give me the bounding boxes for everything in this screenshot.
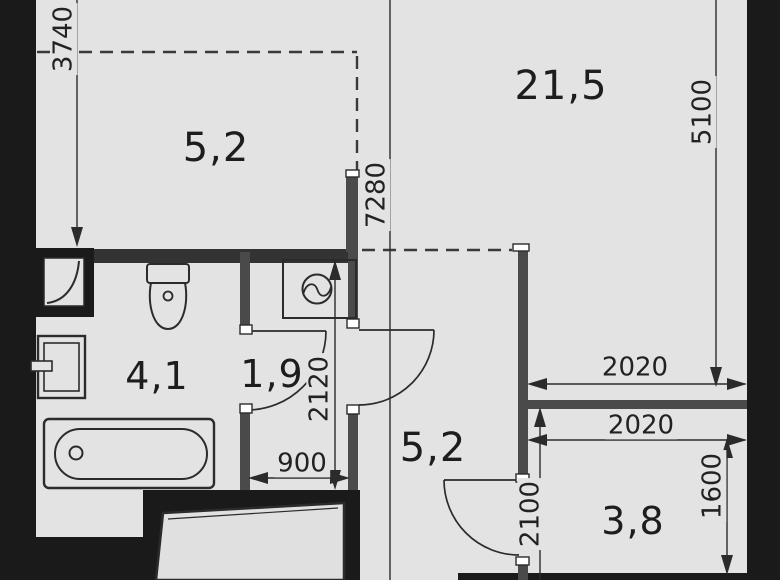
plan-drawing bbox=[0, 0, 780, 580]
dim-label-900: 900 bbox=[274, 450, 330, 477]
toilet-icon bbox=[147, 264, 189, 329]
dim-label-2100: 2100 bbox=[517, 478, 544, 550]
bathtub-icon bbox=[44, 419, 214, 488]
room-label-kitchen: 5,2 bbox=[183, 125, 250, 171]
room-label-bathroom: 4,1 bbox=[125, 354, 188, 398]
dim-label-7280: 7280 bbox=[363, 159, 390, 231]
entry-vestibule-slab bbox=[156, 503, 344, 580]
dim-label-2020-top: 2020 bbox=[599, 354, 671, 381]
dimension-lines bbox=[71, 0, 747, 580]
vent-shaft-icon bbox=[36, 248, 94, 317]
zoning-dashed-lines bbox=[37, 52, 512, 250]
dim-label-2020-bottom: 2020 bbox=[605, 412, 677, 439]
dim-label-2120: 2120 bbox=[306, 353, 333, 425]
room-label-living: 21,5 bbox=[514, 63, 607, 109]
dim-label-1600: 1600 bbox=[699, 450, 726, 522]
room-label-hallway: 5,2 bbox=[400, 425, 467, 471]
dim-label-5100: 5100 bbox=[689, 76, 716, 148]
wardrobe-door bbox=[444, 480, 519, 555]
laundry-door bbox=[359, 330, 434, 405]
room-label-wardrobe: 3,8 bbox=[601, 499, 664, 543]
washing-machine-icon bbox=[283, 260, 356, 318]
floor-plan: 5,2 21,5 4,1 1,9 5,2 3,8 3740 7280 5100 … bbox=[0, 0, 780, 580]
dim-label-3740: 3740 bbox=[50, 3, 77, 75]
room-label-laundry: 1,9 bbox=[240, 352, 303, 396]
sink-icon bbox=[31, 336, 85, 398]
